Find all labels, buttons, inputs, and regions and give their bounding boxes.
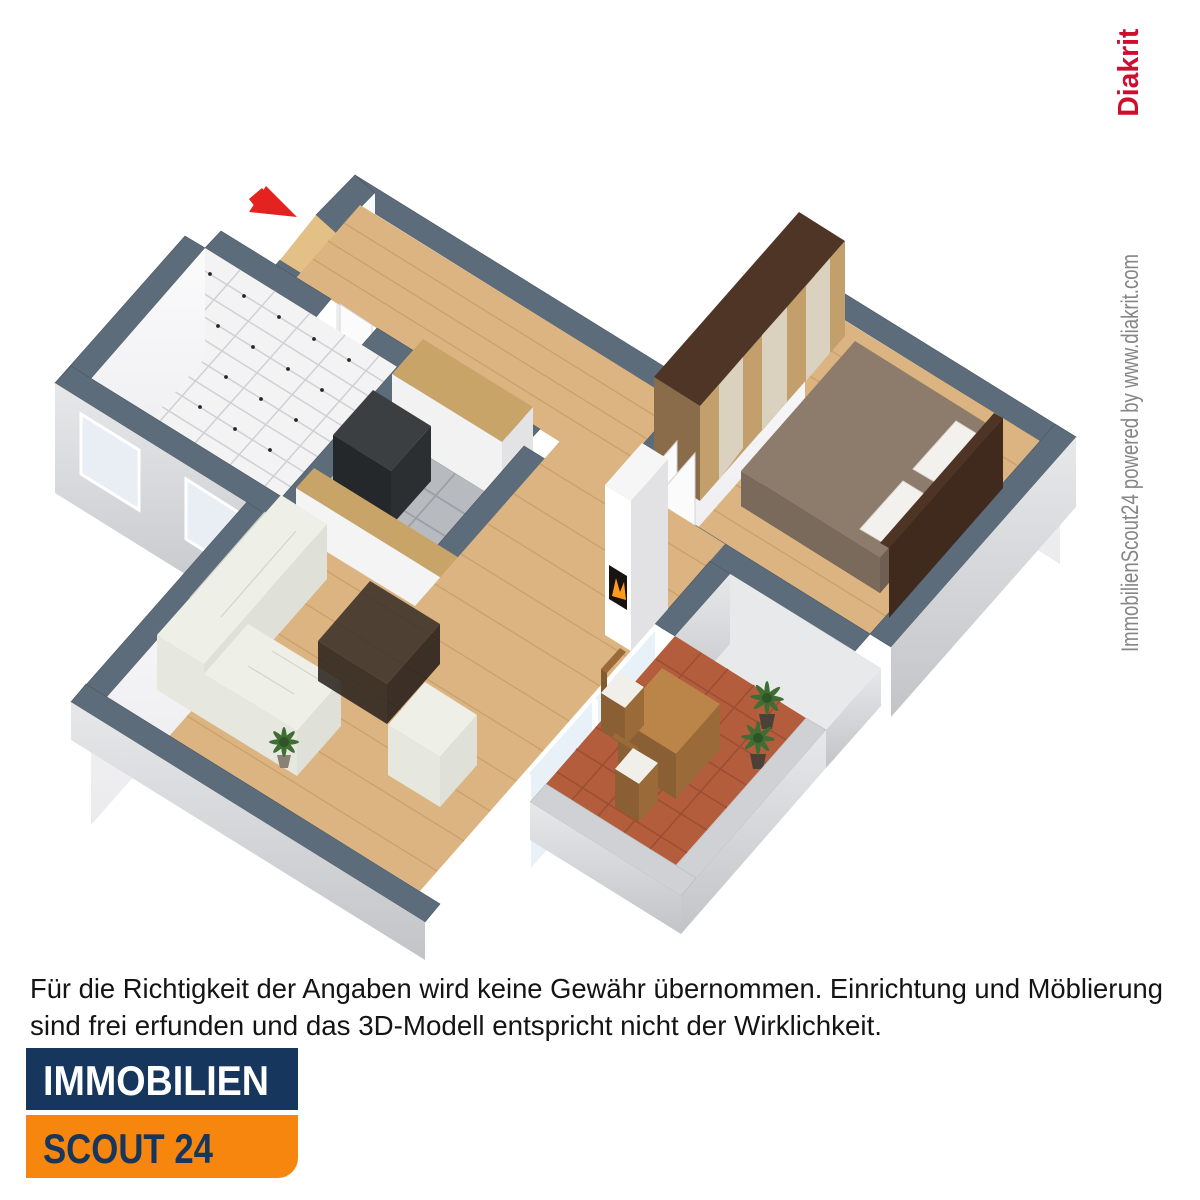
- immobilienscout24-logo: IMMOBILIEN SCOUT 24: [26, 1048, 298, 1178]
- watermark-brand: Diakrit: [1113, 28, 1145, 116]
- watermark: ImmobilienScout24 powered by www.diakrit…: [1113, 28, 1145, 652]
- entrance-arrow: [249, 186, 297, 217]
- logo-top-label: IMMOBILIEN: [43, 1057, 269, 1104]
- disclaimer: Für die Richtigkeit der Angaben wird kei…: [30, 973, 1163, 1041]
- floor-plan-3d: ImmobilienScout24 powered by www.diakrit…: [0, 0, 1200, 1200]
- logo-bottom-label: SCOUT 24: [43, 1125, 214, 1172]
- page: ImmobilienScout24 powered by www.diakrit…: [0, 0, 1200, 1200]
- disclaimer-line-2: sind frei erfunden und das 3D-Modell ent…: [30, 1010, 882, 1041]
- disclaimer-line-1: Für die Richtigkeit der Angaben wird kei…: [30, 973, 1163, 1004]
- watermark-powered-text: ImmobilienScout24 powered by www.diakrit…: [1117, 254, 1144, 652]
